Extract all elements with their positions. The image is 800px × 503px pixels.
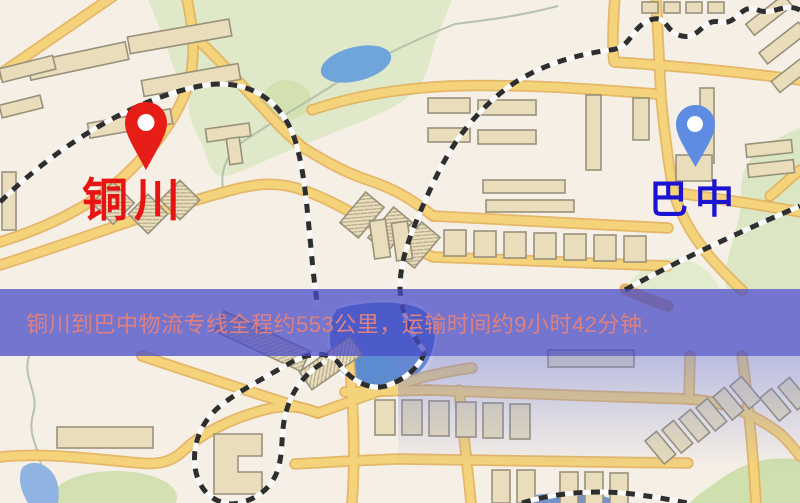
destination-pin-shape: [676, 105, 715, 167]
water-small-left: [20, 463, 59, 503]
map-viewport[interactable]: 铜川 巴中 铜川到巴中物流专线全程约553公里，运输时间约9小时42分钟.: [0, 0, 800, 503]
origin-pin-shape: [125, 102, 167, 170]
map-artwork: [0, 0, 800, 503]
origin-pin-hole: [138, 114, 155, 131]
origin-label: 铜川: [82, 177, 186, 223]
route-info-text: 铜川到巴中物流专线全程约553公里，运输时间约9小时42分钟.: [0, 307, 649, 339]
route-info-banner: 铜川到巴中物流专线全程约553公里，运输时间约9小时42分钟.: [0, 289, 800, 356]
destination-label: 巴中: [649, 181, 741, 220]
water-wash: [398, 356, 800, 468]
origin-pin[interactable]: [123, 101, 169, 172]
destination-pin-hole: [687, 116, 703, 132]
destination-pin[interactable]: [674, 104, 717, 169]
